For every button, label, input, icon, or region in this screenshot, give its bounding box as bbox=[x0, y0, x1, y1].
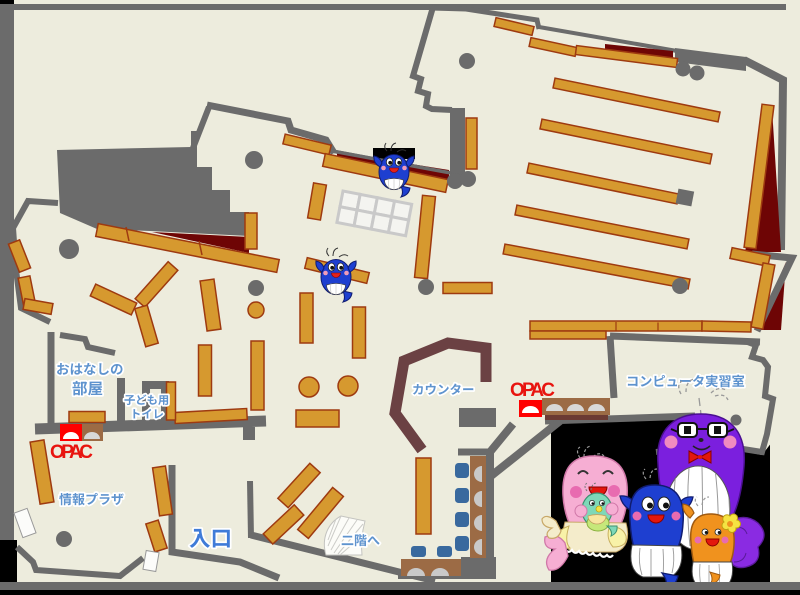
svg-text:OPAC: OPAC bbox=[50, 442, 93, 463]
svg-text:OPAC: OPAC bbox=[510, 380, 555, 401]
